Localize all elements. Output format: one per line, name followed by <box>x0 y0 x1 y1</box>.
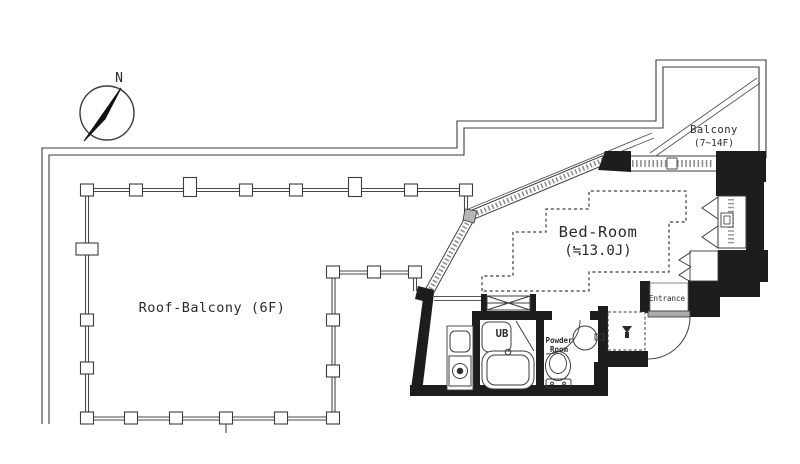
laundry-column <box>447 326 473 390</box>
top-window <box>629 156 717 171</box>
railing-post <box>327 314 340 326</box>
balcony-floors-label: (7~14F) <box>694 138 734 149</box>
railing-post <box>275 412 288 424</box>
outer-boundary <box>42 60 766 424</box>
floor-plan-svg: N <box>0 0 800 464</box>
folding-door-icon <box>679 252 691 282</box>
railing-post <box>327 412 340 424</box>
railing-post <box>409 266 422 278</box>
balcony-label: Balcony <box>690 124 738 136</box>
north-label: N <box>115 71 123 86</box>
railing-post <box>130 184 143 196</box>
railing-post <box>349 178 362 197</box>
powder-room-label-1: Powder <box>545 336 573 345</box>
entrance-closet <box>679 251 718 282</box>
bedroom-size-label: (≒13.0J) <box>564 243 631 259</box>
railing-post <box>240 184 253 196</box>
toilet <box>546 352 572 389</box>
railing-post <box>220 412 233 424</box>
wall-alcove <box>690 251 718 281</box>
entrance-sill <box>648 311 690 317</box>
roof-balcony-label: Roof-Balcony (6F) <box>139 300 286 316</box>
folding-door-icon <box>702 197 718 248</box>
bath-door-line <box>516 321 534 351</box>
railing-post <box>170 412 183 424</box>
counter-xbox <box>487 296 530 310</box>
railing-post <box>81 412 94 424</box>
entrance-label: Entrance <box>649 294 686 303</box>
railing-post <box>81 362 94 374</box>
powder-room-label-2: Room <box>550 345 569 354</box>
railing-post <box>81 184 94 196</box>
bedroom-closet <box>702 196 746 248</box>
railing-post <box>81 314 94 326</box>
north-arrow-icon <box>84 88 121 141</box>
compass: N <box>80 71 134 141</box>
railing-post <box>327 266 340 278</box>
bedroom-dashed-outline <box>482 191 686 291</box>
railing-post <box>290 184 303 196</box>
railing-post <box>184 178 197 197</box>
floor-plan: N <box>0 0 800 464</box>
unit-bath-label: UB <box>496 328 509 340</box>
bedroom-label: Bed-Room <box>559 223 638 241</box>
window-bend-cap <box>463 209 477 223</box>
appliance-space <box>608 312 645 350</box>
railing-post <box>125 412 138 424</box>
entrance-door-arc <box>648 317 690 359</box>
bath-door-track <box>434 297 481 301</box>
railing-post <box>460 184 473 196</box>
wash-basin <box>573 326 597 350</box>
railing-post <box>368 266 381 278</box>
railing-post <box>405 184 418 196</box>
railing-post <box>76 243 98 255</box>
railing-post <box>327 365 340 377</box>
